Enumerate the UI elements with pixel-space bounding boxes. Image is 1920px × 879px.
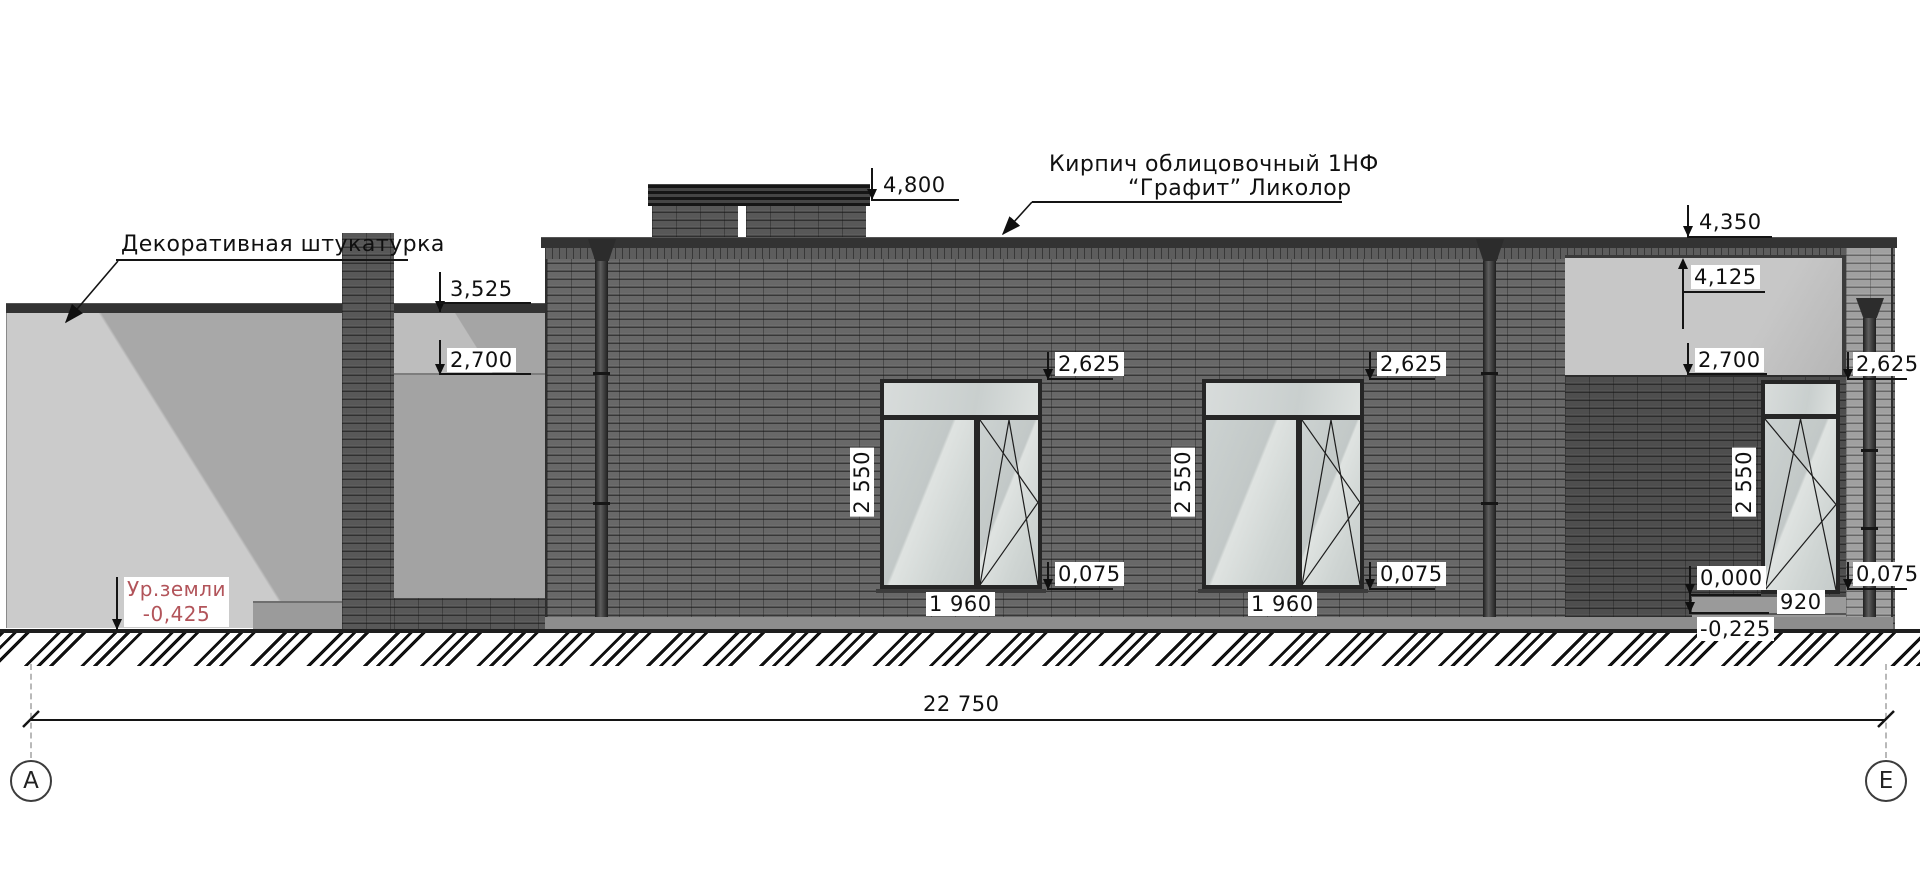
mark-2700-right-label: 2,700: [1695, 348, 1764, 372]
entrance-door: [1761, 380, 1840, 594]
chimney-1-body: [652, 206, 738, 237]
downspout-middle-bracket-2: [1481, 502, 1498, 505]
mark-0075-right-label: 0,075: [1853, 562, 1920, 586]
mark-4125-line: [1682, 269, 1684, 329]
mark-4350-label: 4,350: [1696, 210, 1765, 234]
mark-2625-w1-label: 2,625: [1055, 352, 1124, 376]
mark-3525-level: [439, 302, 531, 304]
ground-mark-arrow: [112, 619, 122, 630]
door-glass: [1765, 419, 1836, 590]
dim-window2-width: 1 960: [1248, 592, 1317, 616]
plaster-callout-text: Декоративная штукатурка: [118, 233, 448, 257]
mark-2625-w2-level: [1369, 378, 1435, 380]
mark-4125-arrow: [1678, 258, 1688, 269]
ground-label-line2: -0,425: [127, 602, 226, 627]
window-2-fixed-pane: [1206, 420, 1296, 585]
window-2-transom-glass: [1206, 383, 1360, 415]
window-2-sash-lines: [1302, 420, 1360, 585]
axis-bubble-a: А: [10, 760, 52, 802]
window-1-fixed-pane: [884, 420, 974, 585]
dim-window2-height: 2 550: [1171, 448, 1195, 517]
door-sash-lines: [1765, 419, 1836, 590]
axis-a-extension-line: [30, 664, 32, 758]
dim-door-height: 2 550: [1732, 448, 1756, 517]
axis-e-letter: Е: [1879, 768, 1894, 794]
mark-4125-label: 4,125: [1691, 265, 1760, 289]
chimney-2-body: [746, 206, 866, 237]
downspout-middle-pipe: [1483, 261, 1496, 632]
downspout-right-bracket-2: [1861, 527, 1878, 530]
recess-coping: [394, 303, 545, 313]
mark-2625-w1-level: [1047, 378, 1113, 380]
downspout-left-pipe: [595, 261, 608, 632]
mark-0000-level: [1689, 594, 1761, 596]
ground-label-line1: Ур.земли: [127, 577, 226, 602]
dim-window1-height: 2 550: [850, 448, 874, 517]
mark-4800-label: 4,800: [880, 173, 949, 197]
mark-2700-left-level: [439, 373, 531, 375]
window-1-sash-lines: [980, 420, 1038, 585]
brick-leader-line: [1003, 202, 1032, 234]
mark-4350-level: [1687, 236, 1772, 238]
mark-3525-label: 3,525: [447, 277, 516, 301]
mark-4125-level: [1683, 291, 1765, 293]
recess-lower-wall: [394, 373, 545, 600]
mark-0000-label: 0,000: [1697, 566, 1766, 590]
recess-brick-base: [394, 598, 545, 632]
elevation-drawing: 4,800 4,350 4,125 3,525 2,700 2,700 2,62…: [0, 0, 1920, 879]
mark-2700-right-level: [1687, 373, 1767, 375]
mark-0075-w1-label: 0,075: [1055, 562, 1124, 586]
mark-0225-level: [1689, 612, 1769, 614]
brick-callout-underline: [1032, 201, 1342, 203]
axis-e-extension-line: [1885, 664, 1887, 758]
axis-bubble-e: Е: [1865, 760, 1907, 802]
mark-0075-right-level: [1847, 588, 1907, 590]
mark-2625-right-level: [1847, 378, 1907, 380]
mark-0075-w2-level: [1369, 588, 1435, 590]
window-2-operable-pane: [1302, 420, 1360, 585]
left-plinth-step: [253, 601, 342, 631]
window-2: [1202, 379, 1364, 589]
downspout-left-bracket-1: [593, 372, 610, 375]
brick-callout-line1: Кирпич облицовочный 1НФ: [1046, 153, 1382, 177]
chimney-1-cap: [648, 184, 742, 206]
chimney-2-cap: [742, 184, 870, 206]
mark-2625-right-label: 2,625: [1853, 352, 1920, 376]
ground-hatch: [0, 633, 1920, 666]
plaster-callout-underline: [116, 259, 408, 261]
window-1: [880, 379, 1042, 589]
brick-callout-line2: “Графит” Ликолор: [1125, 177, 1355, 201]
left-brick-pier: [342, 233, 394, 632]
overall-dim-line: [31, 719, 1886, 721]
dim-door-width: 920: [1777, 590, 1825, 614]
downspout-middle-bracket-1: [1481, 372, 1498, 375]
downspout-left-bracket-2: [593, 502, 610, 505]
main-parapet-coping: [541, 237, 1897, 248]
mark-2625-w2-label: 2,625: [1377, 352, 1446, 376]
ground-label: Ур.земли -0,425: [124, 577, 229, 627]
dim-window1-width: 1 960: [926, 592, 995, 616]
overall-dim-label: 22 750: [920, 692, 1002, 716]
mark-2700-left-label: 2,700: [447, 348, 516, 372]
mark-0225-label: -0,225: [1697, 617, 1774, 641]
axis-a-letter: А: [23, 768, 39, 794]
window-1-operable-pane: [980, 420, 1038, 585]
mark-4800-level: [871, 199, 959, 201]
window-1-transom-glass: [884, 383, 1038, 415]
mark-0075-w2-label: 0,075: [1377, 562, 1446, 586]
downspout-right-bracket-1: [1861, 449, 1878, 452]
door-transom-glass: [1765, 384, 1836, 414]
left-roof-coping: [6, 303, 342, 313]
mark-0075-w1-level: [1047, 588, 1113, 590]
